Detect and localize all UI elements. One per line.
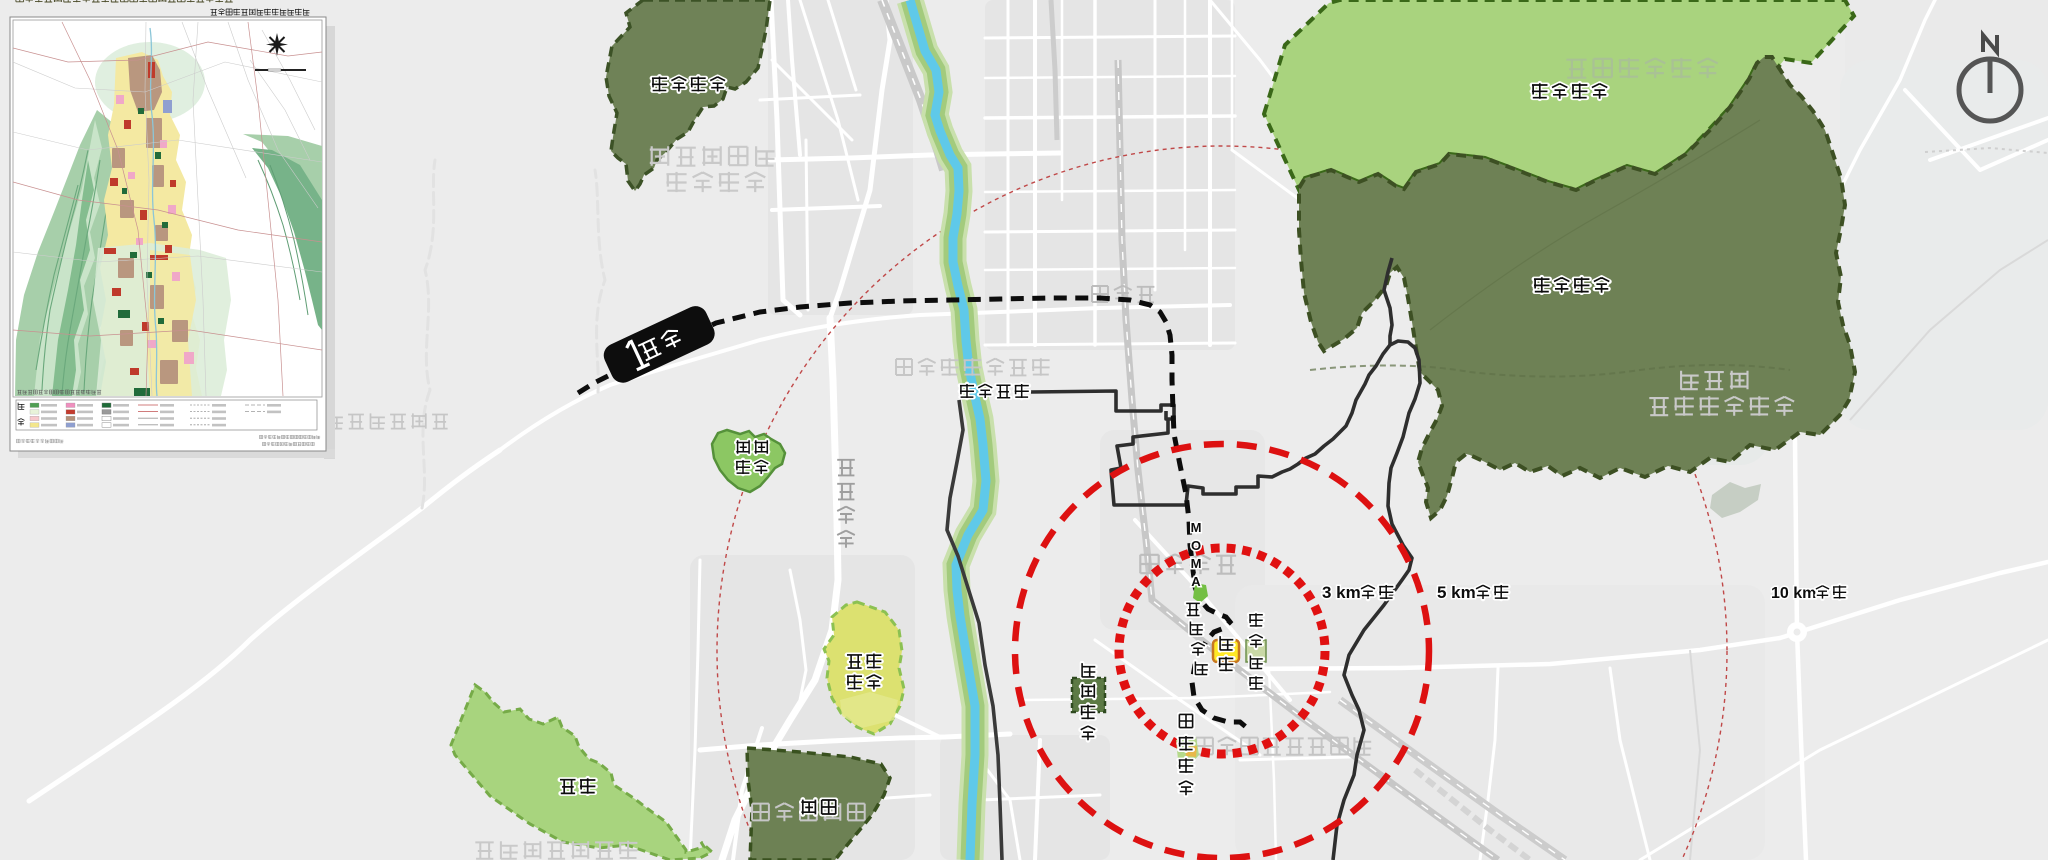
svg-text:10 km: 10 km — [1771, 585, 1816, 602]
svg-text:M: M — [1191, 520, 1202, 535]
svg-text:O: O — [1191, 538, 1201, 553]
svg-text:A: A — [1191, 574, 1201, 589]
svg-text:M: M — [1191, 556, 1202, 571]
svg-text:5 km: 5 km — [1437, 583, 1476, 602]
svg-text:3 km: 3 km — [1322, 583, 1361, 602]
